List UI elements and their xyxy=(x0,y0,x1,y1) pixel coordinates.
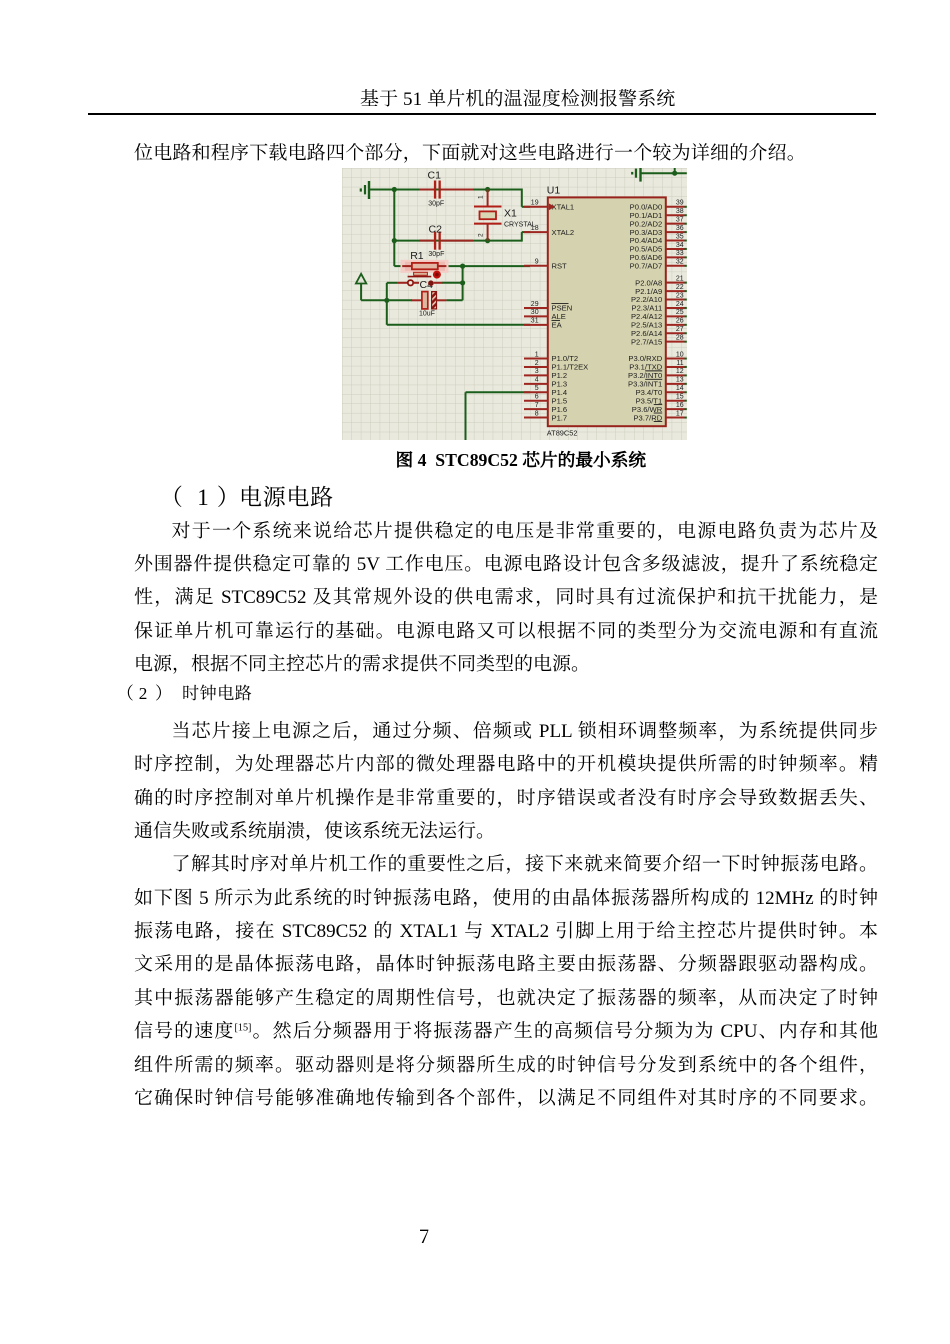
svg-text:36: 36 xyxy=(676,225,684,232)
svg-text:15: 15 xyxy=(676,393,684,400)
svg-text:U1: U1 xyxy=(547,184,561,196)
svg-text:30pF: 30pF xyxy=(428,201,444,208)
svg-text:27: 27 xyxy=(676,326,684,333)
svg-text:8: 8 xyxy=(535,410,539,417)
svg-text:39: 39 xyxy=(676,200,684,207)
svg-text:35: 35 xyxy=(676,233,684,240)
svg-text:28: 28 xyxy=(676,334,684,341)
svg-text:29: 29 xyxy=(531,301,539,308)
svg-text:9: 9 xyxy=(535,259,539,266)
svg-text:6: 6 xyxy=(535,393,539,400)
svg-text:10uF: 10uF xyxy=(419,310,435,317)
svg-text:18: 18 xyxy=(531,225,539,232)
svg-text:19: 19 xyxy=(531,200,539,207)
svg-text:33: 33 xyxy=(676,250,684,257)
svg-text:21: 21 xyxy=(676,275,684,282)
svg-text:11: 11 xyxy=(676,360,683,367)
svg-text:XTAL1: XTAL1 xyxy=(552,203,575,212)
svg-text:30: 30 xyxy=(531,309,539,316)
svg-text:38: 38 xyxy=(676,208,684,215)
svg-text:32: 32 xyxy=(676,259,684,266)
svg-text:XTAL2: XTAL2 xyxy=(552,228,575,237)
svg-text:C1: C1 xyxy=(428,170,442,182)
svg-text:24: 24 xyxy=(676,301,684,308)
svg-text:7: 7 xyxy=(535,402,539,409)
svg-text:RST: RST xyxy=(552,262,568,271)
svg-text:P0.7/AD7: P0.7/AD7 xyxy=(630,262,663,271)
svg-text:P2.7/A15: P2.7/A15 xyxy=(631,337,662,346)
svg-text:25: 25 xyxy=(676,309,684,316)
svg-text:1: 1 xyxy=(478,195,485,199)
svg-text:EA: EA xyxy=(552,321,563,330)
svg-text:R1: R1 xyxy=(410,250,424,262)
svg-text:1: 1 xyxy=(535,351,539,358)
svg-text:5: 5 xyxy=(535,385,539,392)
svg-text:AT89C52: AT89C52 xyxy=(547,428,578,437)
svg-text:30pF: 30pF xyxy=(428,251,444,258)
svg-text:X1: X1 xyxy=(504,208,517,220)
svg-text:31: 31 xyxy=(531,318,539,325)
svg-text:2: 2 xyxy=(478,233,485,237)
svg-text:26: 26 xyxy=(676,318,684,325)
svg-text:10: 10 xyxy=(676,351,684,358)
svg-text:4: 4 xyxy=(535,377,539,384)
svg-text:16: 16 xyxy=(676,402,684,409)
svg-text:23: 23 xyxy=(676,292,684,299)
svg-text:3: 3 xyxy=(535,368,539,375)
svg-text:34: 34 xyxy=(676,242,684,249)
svg-text:C2: C2 xyxy=(429,223,443,235)
svg-text:22: 22 xyxy=(676,284,684,291)
svg-text:P3.7/RD: P3.7/RD xyxy=(633,413,662,422)
svg-text:P1.7: P1.7 xyxy=(552,413,568,422)
svg-text:2: 2 xyxy=(535,360,539,367)
svg-text:14: 14 xyxy=(676,385,684,392)
svg-text:17: 17 xyxy=(676,410,684,417)
svg-text:13: 13 xyxy=(676,377,684,384)
svg-text:12: 12 xyxy=(676,368,684,375)
svg-text:37: 37 xyxy=(676,216,684,223)
